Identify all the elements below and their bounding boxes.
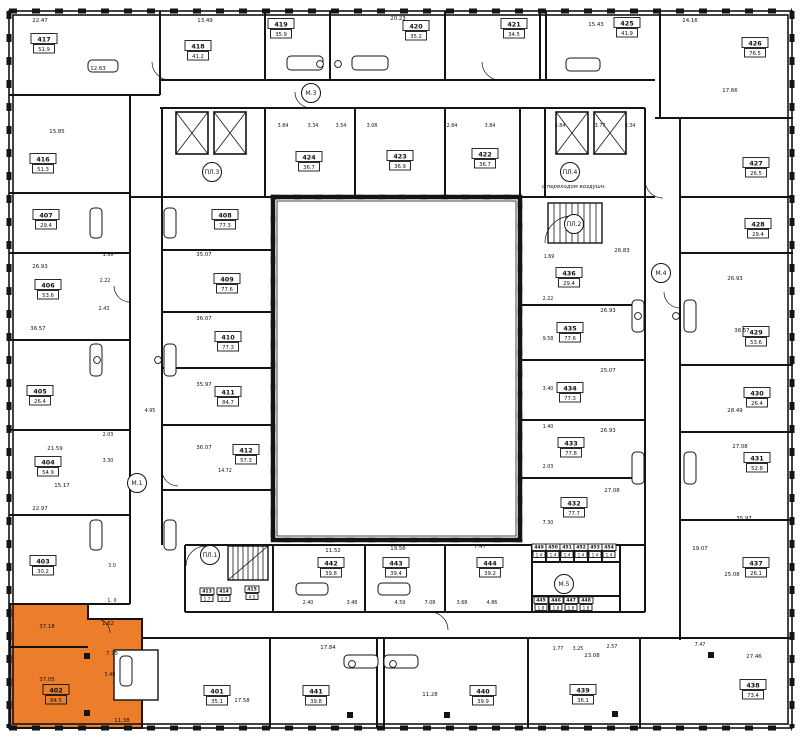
unit-number: 445 <box>536 597 546 603</box>
dimension-label: 14.72 <box>218 468 232 474</box>
unit-tag-401[interactable]: 40135.1 <box>204 686 230 706</box>
unit-tag-436[interactable]: 43629.4 <box>556 268 582 288</box>
dimension-label: 9.58 <box>543 336 554 342</box>
unit-tag-408[interactable]: 40877.3 <box>212 210 238 230</box>
unit-number: 449 <box>534 544 544 550</box>
unit-number: 414 <box>219 588 229 594</box>
unit-number: 430 <box>750 389 764 397</box>
unit-number: 421 <box>507 20 520 28</box>
room-area-label: 26.93 <box>600 308 615 314</box>
unit-area: 34.5 <box>508 32 520 38</box>
room-area-label: 28.49 <box>727 408 743 414</box>
unit-number: 418 <box>191 42 205 50</box>
room-area-label: 37.18 <box>39 624 55 630</box>
dimension-label: 4.95 <box>145 408 156 414</box>
stair-core-pl2: ПЛ.2 <box>565 215 584 234</box>
room-area-label: 26.93 <box>600 428 615 434</box>
unit-number: 433 <box>564 439 577 447</box>
unit-area: 84.7 <box>222 400 234 406</box>
dimension-label: 3.34 <box>308 123 319 129</box>
dimension-label: 1. 0 <box>107 598 116 604</box>
unit-tag-417[interactable]: 41751.9 <box>31 34 57 54</box>
dimension-label: 2.40 <box>303 600 314 606</box>
unit-tag-451[interactable]: 4511.4 <box>560 544 574 558</box>
dimension-label: 3.77 <box>595 123 606 129</box>
unit-area: 41.9 <box>621 31 633 37</box>
room-area-label: 25.08 <box>724 572 740 578</box>
dimension-label: 3.48 <box>347 600 358 606</box>
room-area-label: 26.93 <box>727 276 742 282</box>
unit-tag-433[interactable]: 43377.8 <box>558 438 584 458</box>
unit-tag-428[interactable]: 42829.4 <box>745 219 771 239</box>
dimension-label: 3.84 <box>485 123 496 129</box>
unit-area: 77.3 <box>222 345 234 351</box>
dimension-label: 4.86 <box>487 600 498 606</box>
unit-tag-452[interactable]: 4521.4 <box>574 544 588 558</box>
unit-area: 1.8 <box>583 605 590 610</box>
unit-area: 73.4 <box>747 693 759 699</box>
room-area-label: 7.47 <box>474 544 486 550</box>
dimension-label: 3.68 <box>457 600 468 606</box>
room-area-label: 36.57 <box>734 328 749 334</box>
unit-area: 39.8 <box>310 699 322 705</box>
unit-tag-437[interactable]: 43726.1 <box>743 558 769 578</box>
unit-area: 77.3 <box>564 396 576 402</box>
unit-number: 408 <box>218 211 232 219</box>
unit-tag-414[interactable]: 4141.7 <box>217 588 231 602</box>
unit-number: 439 <box>576 686 590 694</box>
unit-tag-440[interactable]: 44039.9 <box>470 686 496 706</box>
unit-number: 425 <box>620 19 633 27</box>
unit-number: 426 <box>748 39 762 47</box>
unit-area: 51.9 <box>38 47 50 53</box>
unit-number: 411 <box>221 388 234 396</box>
unit-area: 1.4 <box>564 552 571 557</box>
room-area-label: 19.07 <box>692 546 707 552</box>
unit-area: 1.4 <box>550 552 557 557</box>
dimension-label: 2.03 <box>103 432 114 438</box>
unit-tag-449[interactable]: 4491.4 <box>532 544 546 558</box>
stair-core-m5: М.5 <box>555 575 574 594</box>
dimension-label: 1.69 <box>544 254 555 260</box>
unit-area: 26.1 <box>750 571 762 577</box>
unit-number: 419 <box>274 20 288 28</box>
unit-area: 4.5 <box>249 594 256 599</box>
unit-area: 52.8 <box>751 466 763 472</box>
unit-number: 434 <box>563 384 577 392</box>
room-area-label: 36.57 <box>30 326 45 332</box>
unit-number: 410 <box>221 333 235 341</box>
unit-tag-415[interactable]: 4154.5 <box>245 586 259 600</box>
unit-tag-407[interactable]: 40729.4 <box>33 210 59 230</box>
core-label-text: М.4 <box>656 270 667 277</box>
dimension-label: 1.40 <box>543 424 554 430</box>
room-area-label: 26.93 <box>32 264 47 270</box>
dimension-label: 7.08 <box>425 600 436 606</box>
unit-tag-445[interactable]: 4451.8 <box>534 597 548 611</box>
room-area-label: 13.49 <box>197 18 213 24</box>
core-label-text: М.1 <box>132 480 143 487</box>
unit-area: 51.3 <box>37 167 49 173</box>
unit-area: 39.8 <box>325 571 337 577</box>
room-area-label: 27.08 <box>604 488 620 494</box>
unit-number: 407 <box>39 211 52 219</box>
unit-number: 424 <box>302 153 316 161</box>
room-area-label: 36.07 <box>196 445 211 451</box>
dimension-label: 2.22 <box>543 296 554 302</box>
unit-tag-410[interactable]: 41077.3 <box>215 332 241 352</box>
room-area-label: 25.07 <box>600 368 615 374</box>
room-area-label: 37.05 <box>39 677 54 683</box>
unit-tag-405[interactable]: 40526.4 <box>27 386 53 406</box>
unit-number: 435 <box>563 324 576 332</box>
room-area-label: 22.47 <box>32 18 47 24</box>
unit-tag-427[interactable]: 42726.5 <box>743 158 769 178</box>
dimension-label: 7.47 <box>695 642 706 648</box>
unit-area: 54.9 <box>42 470 54 476</box>
unit-number: 440 <box>476 687 490 695</box>
unit-tag-424[interactable]: 42436.7 <box>296 152 322 172</box>
unit-tag-413[interactable]: 4131.7 <box>200 588 214 602</box>
floor-plan: 41751.941841.241935.942035.242134.542541… <box>0 0 800 737</box>
core-label-text: ПЛ.4 <box>563 169 578 176</box>
room-area-label: 19.56 <box>390 546 406 552</box>
unit-tag-403[interactable]: 40330.2 <box>30 556 56 576</box>
core-label-text: ПЛ.1 <box>203 552 218 559</box>
core-label-text: М.3 <box>306 90 317 97</box>
unit-area: 26.4 <box>751 401 763 407</box>
unit-number: 412 <box>239 446 252 454</box>
unit-number: 437 <box>749 559 762 567</box>
unit-tag-425[interactable]: 42541.9 <box>614 18 640 38</box>
unit-number: 415 <box>247 586 257 592</box>
unit-number: 423 <box>393 152 406 160</box>
unit-area: 41.2 <box>192 54 204 60</box>
dimension-label: 3.0 <box>108 563 116 569</box>
unit-tag-439[interactable]: 43936.1 <box>570 685 596 705</box>
unit-number: 402 <box>49 686 62 694</box>
unit-tag-446[interactable]: 4461.8 <box>549 597 563 611</box>
unit-area: 35.2 <box>410 34 422 40</box>
unit-number: 450 <box>548 544 558 550</box>
unit-tag-450[interactable]: 4501.4 <box>546 544 560 558</box>
unit-area: 57.3 <box>240 458 252 464</box>
unit-area: 1.4 <box>606 552 613 557</box>
unit-number: 432 <box>567 499 580 507</box>
stair-core-pl4: ПЛ.4 <box>561 163 580 182</box>
room-area-label: 27.46 <box>746 654 762 660</box>
unit-area: 35.9 <box>275 32 287 38</box>
unit-area: 39.2 <box>484 571 496 577</box>
room-area-label: 17.58 <box>234 698 250 704</box>
room-area-label: 23.08 <box>584 653 600 659</box>
unit-tag-453[interactable]: 4531.4 <box>588 544 602 558</box>
unit-area: 53.6 <box>42 293 54 299</box>
dimension-label: 3.84 <box>555 123 566 129</box>
stair-core-m3: М.3 <box>302 84 321 103</box>
unit-tag-422[interactable]: 42236.7 <box>472 149 498 169</box>
room-area-label: 1.62 <box>102 621 114 627</box>
room-area-label: 11.38 <box>114 718 130 724</box>
unit-area: 1.7 <box>204 596 211 601</box>
unit-number: 444 <box>483 559 497 567</box>
room-area-label: 36.07 <box>196 316 211 322</box>
unit-area: 39.4 <box>390 571 402 577</box>
unit-area: 29.4 <box>40 223 52 229</box>
unit-tag-438[interactable]: 43873.4 <box>740 680 766 700</box>
unit-tag-416[interactable]: 41651.3 <box>30 154 56 174</box>
unit-tag-431[interactable]: 43152.8 <box>744 453 770 473</box>
unit-area: 36.9 <box>394 164 406 170</box>
unit-area: 1.4 <box>592 552 599 557</box>
unit-area: 29.4 <box>563 281 575 287</box>
unit-tag-447[interactable]: 4471.8 <box>564 597 578 611</box>
unit-area: 76.5 <box>749 51 761 57</box>
unit-area: 1.4 <box>536 552 543 557</box>
stair-core-m4: М.4 <box>652 264 671 283</box>
unit-number: 403 <box>36 557 49 565</box>
unit-tag-444[interactable]: 44439.2 <box>477 558 503 578</box>
unit-number: 422 <box>478 150 491 158</box>
unit-tag-404[interactable]: 40454.9 <box>35 457 61 477</box>
room-area-label: 20.23 <box>390 16 405 22</box>
unit-area: 30.2 <box>37 569 49 575</box>
dimension-label: 3.54 <box>336 123 347 129</box>
dimension-label: 2.43 <box>99 306 110 312</box>
room-area-label: 7.75 <box>106 651 118 657</box>
unit-number: 446 <box>551 597 561 603</box>
dimension-label: 5.48 <box>105 672 116 678</box>
unit-area: 29.4 <box>752 232 764 238</box>
unit-number: 416 <box>36 155 50 163</box>
unit-number: 401 <box>210 687 223 695</box>
unit-tag-443[interactable]: 44339.4 <box>383 558 409 578</box>
dimension-label: 3.84 <box>278 123 289 129</box>
dimension-label: 7.30 <box>543 520 554 526</box>
unit-area: 1.7 <box>221 596 228 601</box>
unit-number: 409 <box>220 275 234 283</box>
unit-area: 77.8 <box>565 451 577 457</box>
core-label-text: ПЛ.2 <box>567 221 582 228</box>
unit-tag-430[interactable]: 43026.4 <box>744 388 770 408</box>
unit-tag-435[interactable]: 43577.6 <box>557 323 583 343</box>
dimension-label: 3.08 <box>367 123 378 129</box>
unit-tag-412[interactable]: 41257.3 <box>233 445 259 465</box>
dimension-label: 1.99 <box>103 252 114 258</box>
dimension-label: 4.59 <box>395 600 406 606</box>
unit-area: 53.6 <box>750 340 762 346</box>
unit-area: 1.4 <box>578 552 585 557</box>
room-area-label: 17.66 <box>722 88 738 94</box>
unit-tag-454[interactable]: 4541.4 <box>602 544 616 558</box>
room-area-label: 22.97 <box>32 506 47 512</box>
unit-tag-409[interactable]: 40977.6 <box>214 274 240 294</box>
unit-tag-420[interactable]: 42035.2 <box>403 21 429 41</box>
unit-tag-423[interactable]: 42336.9 <box>387 151 413 171</box>
unit-number: 406 <box>41 281 55 289</box>
dimension-label: 2.84 <box>447 123 458 129</box>
unit-number: 405 <box>33 387 46 395</box>
dimension-label: 3.30 <box>103 458 114 464</box>
unit-number: 452 <box>576 544 586 550</box>
room-area-label: 26.83 <box>614 248 629 254</box>
unit-tag-426[interactable]: 42676.5 <box>742 38 768 58</box>
unit-number: 420 <box>409 22 423 30</box>
courtyard <box>273 197 520 540</box>
unit-number: 454 <box>604 544 614 550</box>
unit-tag-448[interactable]: 4481.8 <box>579 597 593 611</box>
unit-area: 77.3 <box>219 223 231 229</box>
unit-tag-411[interactable]: 41184.7 <box>215 387 241 407</box>
unit-tag-432[interactable]: 43277.7 <box>561 498 587 518</box>
stair-core-m1: М.1 <box>128 474 147 493</box>
unit-tag-441[interactable]: 44139.8 <box>303 686 329 706</box>
room-area-label: 11.28 <box>422 692 438 698</box>
unit-number: 448 <box>581 597 591 603</box>
dimension-label: 2.03 <box>543 464 554 470</box>
unit-number: 431 <box>750 454 763 462</box>
unit-area: 1.8 <box>568 605 575 610</box>
room-area-label: 15.17 <box>54 483 69 489</box>
unit-tag-434[interactable]: 43477.3 <box>557 383 583 403</box>
dimension-label: 2.57 <box>607 644 618 650</box>
stair-core-pl3: ПЛ.3 <box>203 163 222 182</box>
unit-area: 77.7 <box>568 511 580 517</box>
unit-number: 436 <box>562 269 576 277</box>
room-area-label: 35.07 <box>196 252 211 258</box>
unit-area: 36.7 <box>479 162 491 168</box>
unit-tag-442[interactable]: 44239.8 <box>318 558 344 578</box>
dimension-label: 3.34 <box>625 123 636 129</box>
dimension-label: 3.40 <box>543 386 554 392</box>
unit-number: 429 <box>749 328 763 336</box>
unit-number: 413 <box>202 588 212 594</box>
room-area-label: 27.08 <box>732 444 748 450</box>
unit-area: 39.9 <box>477 699 489 705</box>
unit-number: 428 <box>751 220 765 228</box>
dimension-label: 3.25 <box>573 646 584 652</box>
core-label-text: М.5 <box>559 581 570 588</box>
unit-number: 447 <box>566 597 576 603</box>
unit-number: 451 <box>562 544 572 550</box>
room-area-label: 21.59 <box>47 446 63 452</box>
room-area-label: 24.16 <box>682 18 698 24</box>
unit-number: 417 <box>37 35 50 43</box>
core-note: с переходом воздушн. <box>542 184 606 190</box>
stair-core-pl1: ПЛ.1 <box>201 546 220 565</box>
unit-number: 442 <box>324 559 337 567</box>
unit-area: 1.8 <box>553 605 560 610</box>
dimension-label: 2.22 <box>100 278 111 284</box>
room-area-label: 15.43 <box>588 22 603 28</box>
unit-number: 427 <box>749 159 762 167</box>
unit-tag-419[interactable]: 41935.9 <box>268 19 294 39</box>
unit-area: 35.1 <box>211 699 223 705</box>
unit-area: 26.4 <box>34 399 46 405</box>
unit-area: 84.5 <box>50 698 62 704</box>
unit-area: 26.5 <box>750 171 762 177</box>
unit-tag-418[interactable]: 41841.2 <box>185 41 211 61</box>
unit-number: 438 <box>746 681 760 689</box>
unit-tag-421[interactable]: 42134.5 <box>501 19 527 39</box>
unit-area: 1.8 <box>538 605 545 610</box>
room-area-label: 35.97 <box>736 516 751 522</box>
unit-area: 36.7 <box>303 165 315 171</box>
room-area-label: 11.52 <box>325 548 340 554</box>
room-area-label: 17.84 <box>320 645 336 651</box>
unit-number: 443 <box>389 559 402 567</box>
unit-tag-406[interactable]: 40653.6 <box>35 280 61 300</box>
unit-area: 77.6 <box>564 336 576 342</box>
floor-plan-svg: 41751.941841.241935.942035.242134.542541… <box>0 0 800 737</box>
room-area-label: 15.85 <box>49 129 64 135</box>
room-area-label: 12.63 <box>90 66 105 72</box>
core-label-text: ПЛ.3 <box>205 169 220 176</box>
unit-number: 453 <box>590 544 600 550</box>
unit-area: 77.6 <box>221 287 233 293</box>
dimension-label: 1.77 <box>553 646 564 652</box>
unit-number: 441 <box>309 687 322 695</box>
room-area-label: 35.97 <box>196 382 211 388</box>
unit-area: 36.1 <box>577 698 589 704</box>
unit-number: 404 <box>41 458 55 466</box>
